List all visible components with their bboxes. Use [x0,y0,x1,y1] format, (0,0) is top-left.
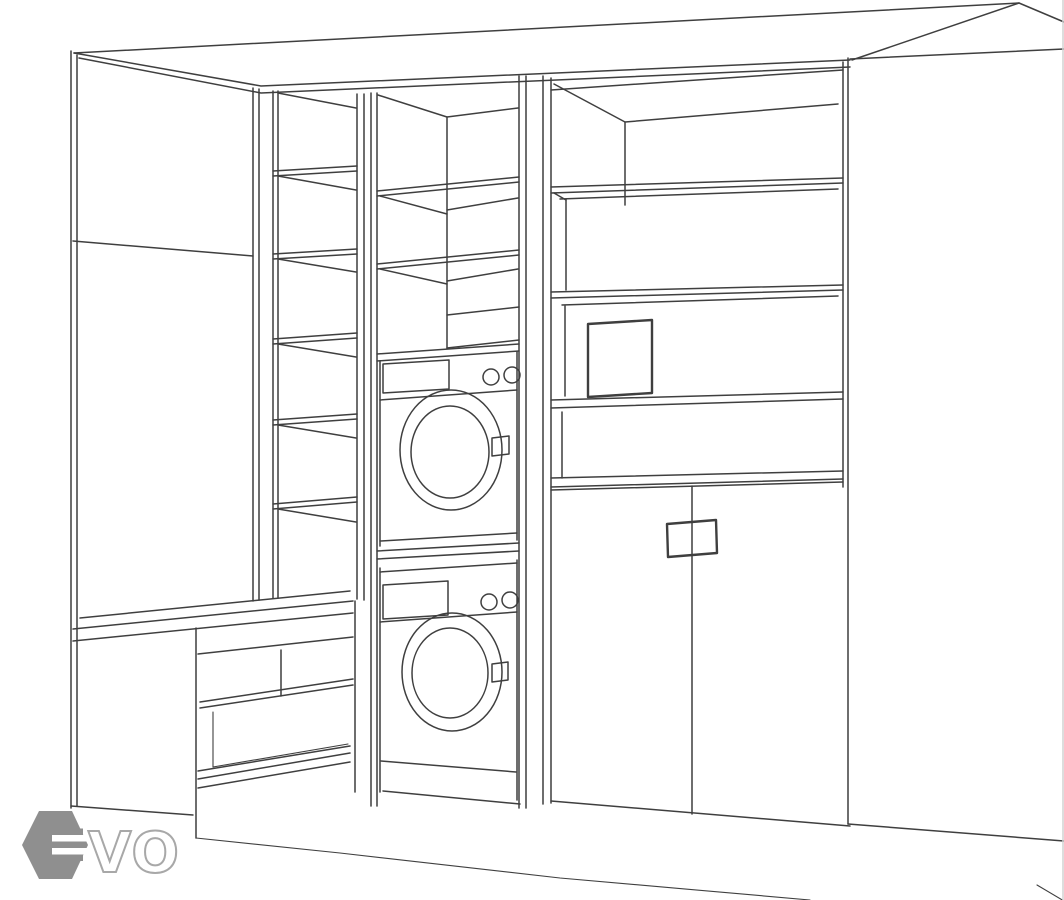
dryer-detergent-drawer [383,360,449,393]
washer-door [402,613,502,731]
dryer-upper-machine [377,352,520,559]
washer-knob-icon [502,592,518,608]
dryer-knob-icon [483,369,499,385]
hexagon-e-icon [22,811,98,879]
cabinet-perspective-sketch: VO [0,0,1064,900]
floor-lines [196,838,1064,900]
bench-drawers [198,637,353,654]
left-wall-panel [71,51,259,815]
sketch-canvas: VO [0,0,1064,900]
washer-knob-icon [481,594,497,610]
bench [73,591,355,838]
over-washer-cabinet [377,76,526,808]
washer-door-handle [492,662,508,682]
tall-shelf-column [273,91,364,600]
watermark-text: VO [88,821,180,886]
washer-lower-machine [380,560,520,804]
divider-panel [371,93,377,806]
right-shelf-unit [543,58,848,824]
right-side-panel [848,824,1064,841]
dryer-door [400,390,502,510]
washer-detergent-drawer [383,581,448,619]
cabinet-doors [551,482,850,826]
storage-box [588,320,652,397]
evo-logo: VO [22,811,180,886]
top-panel [74,3,1064,93]
